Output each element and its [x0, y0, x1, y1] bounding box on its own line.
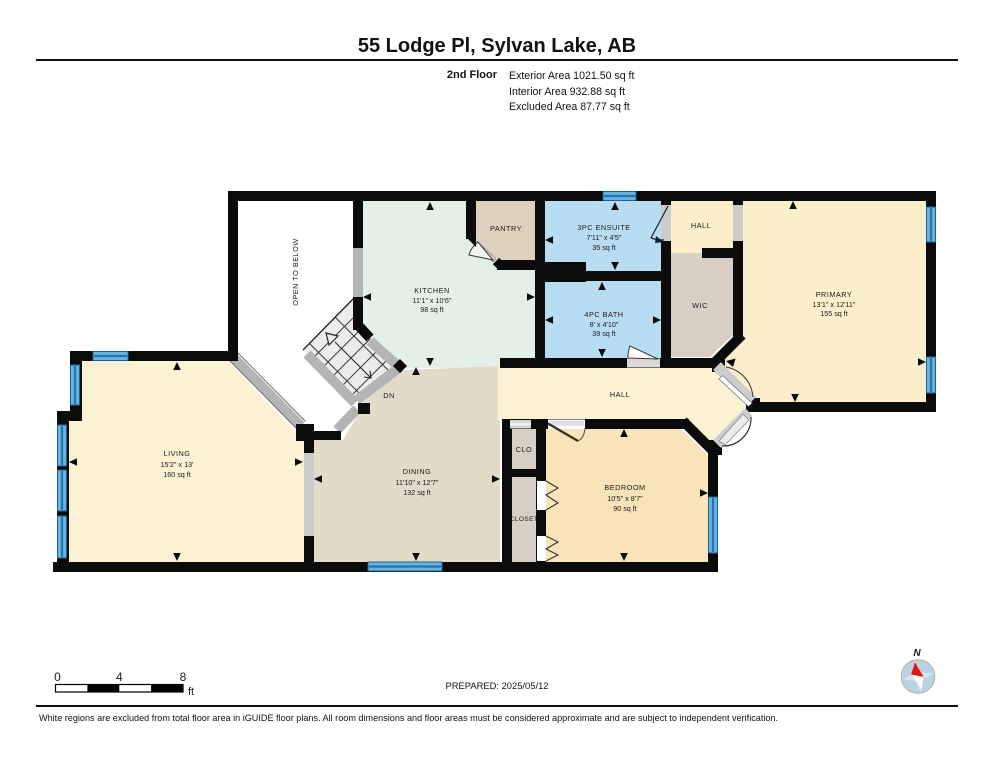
svg-text:BEDROOM: BEDROOM — [604, 483, 645, 492]
svg-text:132 sq ft: 132 sq ft — [403, 488, 431, 497]
svg-text:39 sq ft: 39 sq ft — [592, 329, 616, 338]
svg-text:HALL: HALL — [691, 221, 711, 230]
svg-text:KITCHEN: KITCHEN — [414, 286, 450, 295]
svg-text:N: N — [913, 648, 921, 659]
svg-text:OPEN TO BELOW: OPEN TO BELOW — [291, 238, 300, 305]
svg-text:13'1" x 12'11": 13'1" x 12'11" — [813, 300, 856, 309]
svg-text:155 sq ft: 155 sq ft — [820, 309, 848, 318]
svg-text:90 sq ft: 90 sq ft — [613, 504, 637, 513]
svg-text:CLO: CLO — [516, 445, 533, 454]
svg-text:98 sq ft: 98 sq ft — [420, 305, 444, 314]
svg-text:PRIMARY: PRIMARY — [816, 290, 853, 299]
svg-text:8' x 4'10": 8' x 4'10" — [590, 320, 619, 329]
svg-text:3PC ENSUITE: 3PC ENSUITE — [577, 223, 630, 232]
svg-text:4PC BATH: 4PC BATH — [584, 310, 623, 319]
svg-text:DINING: DINING — [403, 467, 432, 476]
svg-text:7'11" x 4'5": 7'11" x 4'5" — [587, 233, 622, 242]
svg-text:11'1" x 10'6": 11'1" x 10'6" — [413, 296, 452, 305]
svg-text:10'5" x 8'7": 10'5" x 8'7" — [607, 494, 643, 503]
svg-text:35 sq ft: 35 sq ft — [592, 243, 616, 252]
svg-text:HALL: HALL — [610, 390, 630, 399]
svg-text:CLOSET: CLOSET — [510, 516, 538, 523]
svg-text:15'2" x 13': 15'2" x 13' — [161, 460, 194, 469]
svg-text:160 sq ft: 160 sq ft — [163, 470, 191, 479]
svg-text:11'10" x 12'7": 11'10" x 12'7" — [396, 478, 439, 487]
svg-text:LIVING: LIVING — [164, 449, 191, 458]
svg-text:WIC: WIC — [692, 301, 708, 310]
svg-text:PANTRY: PANTRY — [490, 224, 522, 233]
svg-text:DN: DN — [383, 391, 395, 400]
